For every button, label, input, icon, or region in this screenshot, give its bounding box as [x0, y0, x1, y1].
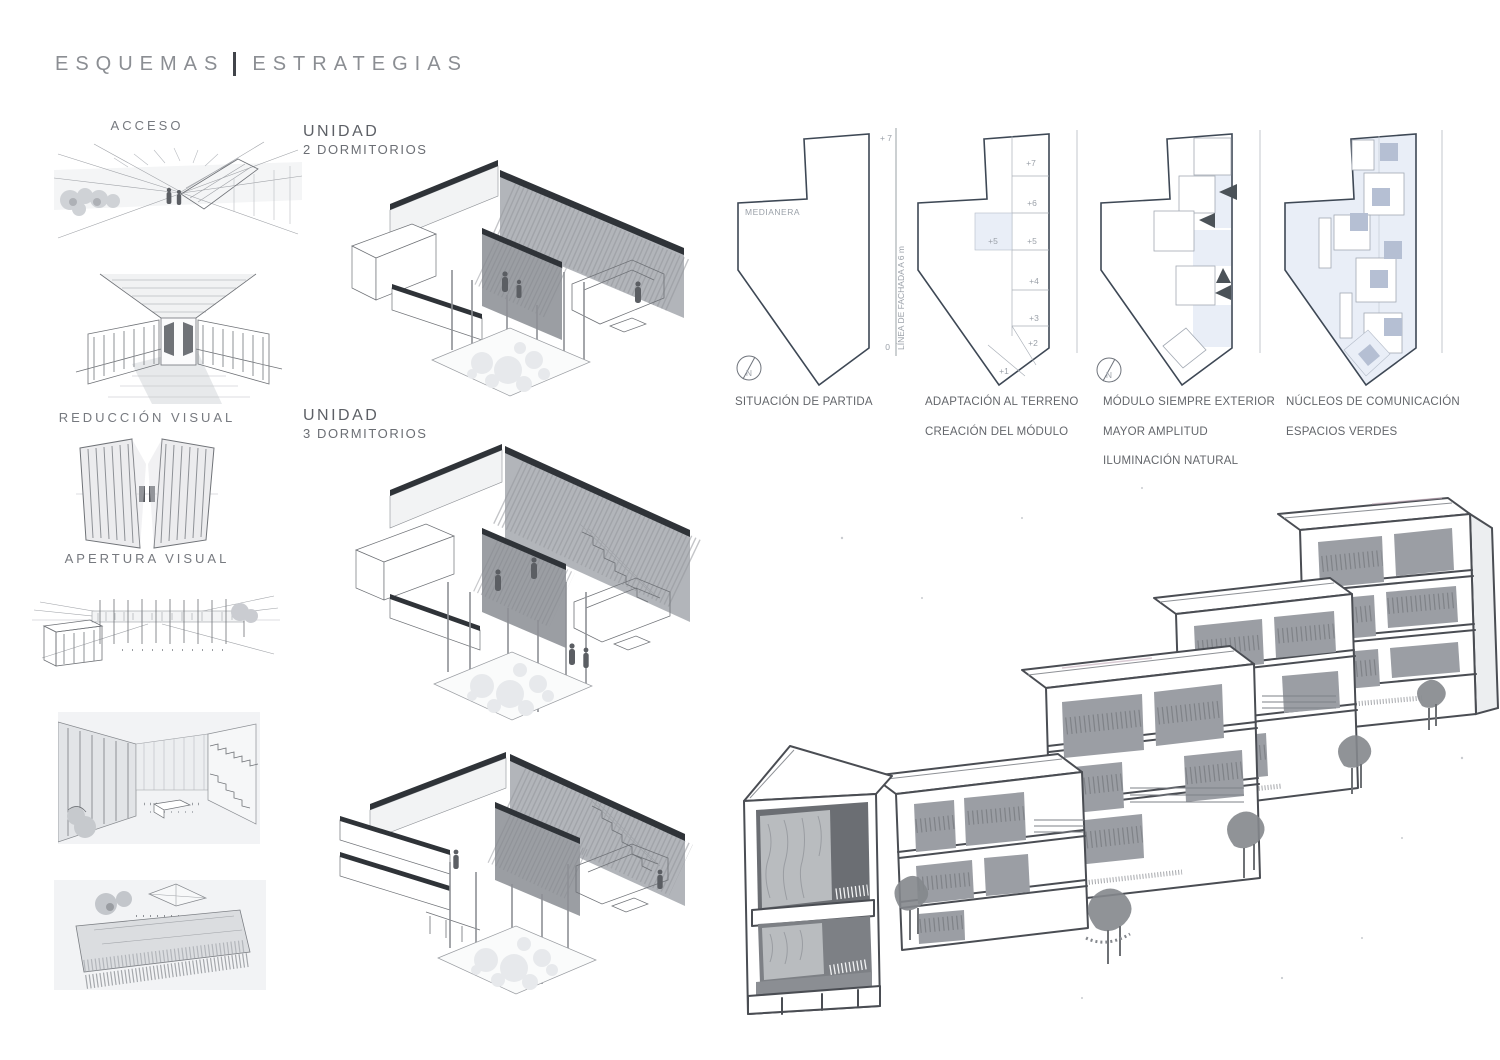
- massing-sketch: [722, 458, 1500, 1018]
- medianera-label: MEDIANERA: [745, 207, 800, 217]
- presentation-board: ESQUEMAS ESTRATEGIAS ACCESO: [0, 0, 1500, 1060]
- acceso-sketch: [52, 138, 304, 256]
- apertura-label: APERTURA VISUAL: [52, 551, 242, 566]
- tree-icon: [1086, 888, 1132, 964]
- caption-panel1: SITUACIÓN DE PARTIDA: [735, 396, 920, 426]
- caption-line: MÓDULO SIEMPRE EXTERIOR: [1103, 396, 1288, 408]
- floor-label: +1: [999, 366, 1009, 376]
- floor-label: +5: [1027, 236, 1037, 246]
- diagram-situacion-de-partida: MEDIANERA + 7 0 LÍNEA DE FACHADA A 6 m N: [725, 118, 915, 428]
- diagram-adaptacion-al-terreno: +7 +6 +5 +5 +4 +3 +2 +1: [905, 118, 1095, 428]
- module-floor-label: +5: [988, 236, 998, 246]
- reduccion-label: REDUCCIÓN VISUAL: [52, 410, 242, 425]
- caption-line: NÚCLEOS DE COMUNICACIÓN: [1286, 396, 1471, 408]
- title-right: ESTRATEGIAS: [252, 53, 468, 76]
- caption-line: SITUACIÓN DE PARTIDA: [735, 396, 920, 408]
- reduccion-sketch: [76, 436, 218, 558]
- page-title: ESQUEMAS ESTRATEGIAS: [55, 52, 468, 76]
- axon-unit-2dorm: [332, 148, 712, 404]
- diagram-modulo-siempre-exterior: N: [1088, 118, 1278, 428]
- diagram-nucleos-comunicacion: [1272, 118, 1462, 428]
- caption-line: MAYOR AMPLITUD: [1103, 426, 1288, 438]
- unit1-title: UNIDAD: [303, 122, 428, 142]
- axon-unit-3dorm-lower: [330, 744, 710, 1016]
- title-left: ESQUEMAS: [55, 53, 224, 76]
- svg-text:N: N: [746, 368, 752, 378]
- svg-text:N: N: [1106, 370, 1112, 380]
- floor-label: +6: [1027, 198, 1037, 208]
- caption-line: ESPACIOS VERDES: [1286, 426, 1471, 438]
- corridor-sketch: [70, 256, 288, 408]
- floor-label: +2: [1028, 338, 1038, 348]
- courtyard-sketch: [58, 704, 260, 852]
- north-compass-icon: N: [1097, 358, 1121, 382]
- caption-line: ADAPTACIÓN AL TERRENO: [925, 396, 1110, 408]
- title-divider: [233, 52, 236, 76]
- acceso-label: ACCESO: [52, 118, 242, 133]
- level-top-label: + 7: [880, 133, 892, 143]
- unit2-title: UNIDAD: [303, 406, 428, 426]
- caption-panel2: ADAPTACIÓN AL TERRENO CREACIÓN DEL MÓDUL…: [925, 396, 1110, 455]
- caption-line: CREACIÓN DEL MÓDULO: [925, 426, 1110, 438]
- level-zero-label: 0: [885, 342, 890, 352]
- floor-label: +4: [1029, 276, 1039, 286]
- apertura-sketch: [32, 574, 280, 696]
- axon-unit-3dorm-upper: [330, 432, 710, 740]
- north-compass-icon: N: [737, 356, 761, 380]
- floor-label: +3: [1029, 313, 1039, 323]
- caption-panel4: NÚCLEOS DE COMUNICACIÓN ESPACIOS VERDES: [1286, 396, 1471, 455]
- floor-label: +7: [1026, 158, 1036, 168]
- aerial-sketch: [54, 874, 266, 996]
